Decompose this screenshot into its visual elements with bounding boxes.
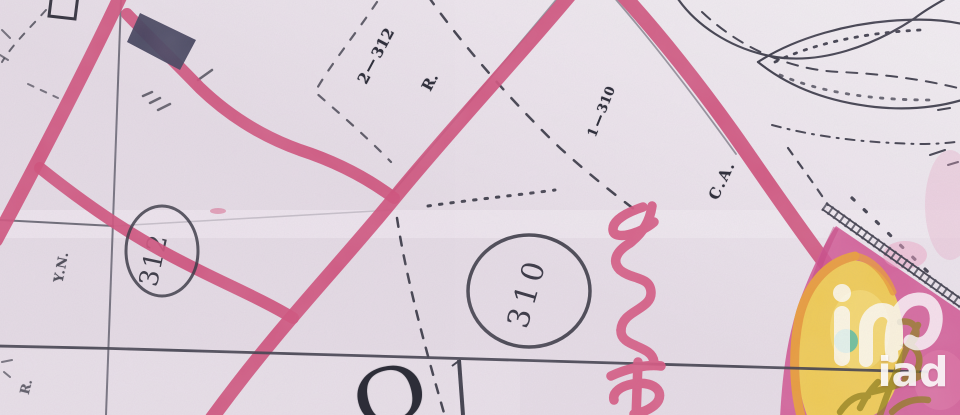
fraction-bar — [367, 59, 375, 71]
paper-grain — [0, 0, 960, 415]
map-artwork: 312 310 — [0, 0, 960, 415]
cadastral-map-scan: 312 310 — [0, 0, 960, 415]
fraction-bar — [596, 115, 602, 126]
iad-logo-text: iad — [877, 348, 948, 396]
